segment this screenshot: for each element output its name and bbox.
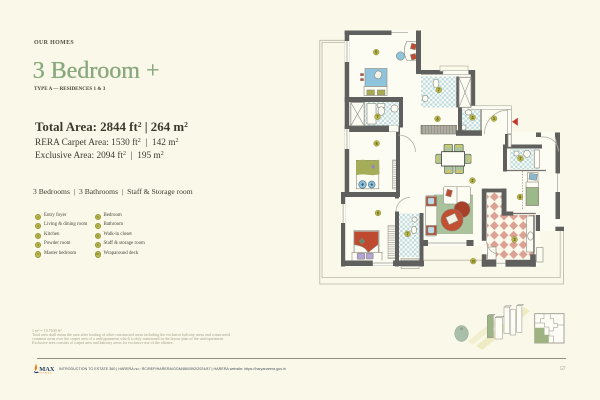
svg-text:10: 10 [471, 260, 475, 264]
svg-text:ESTATES: ESTATES [40, 371, 52, 374]
